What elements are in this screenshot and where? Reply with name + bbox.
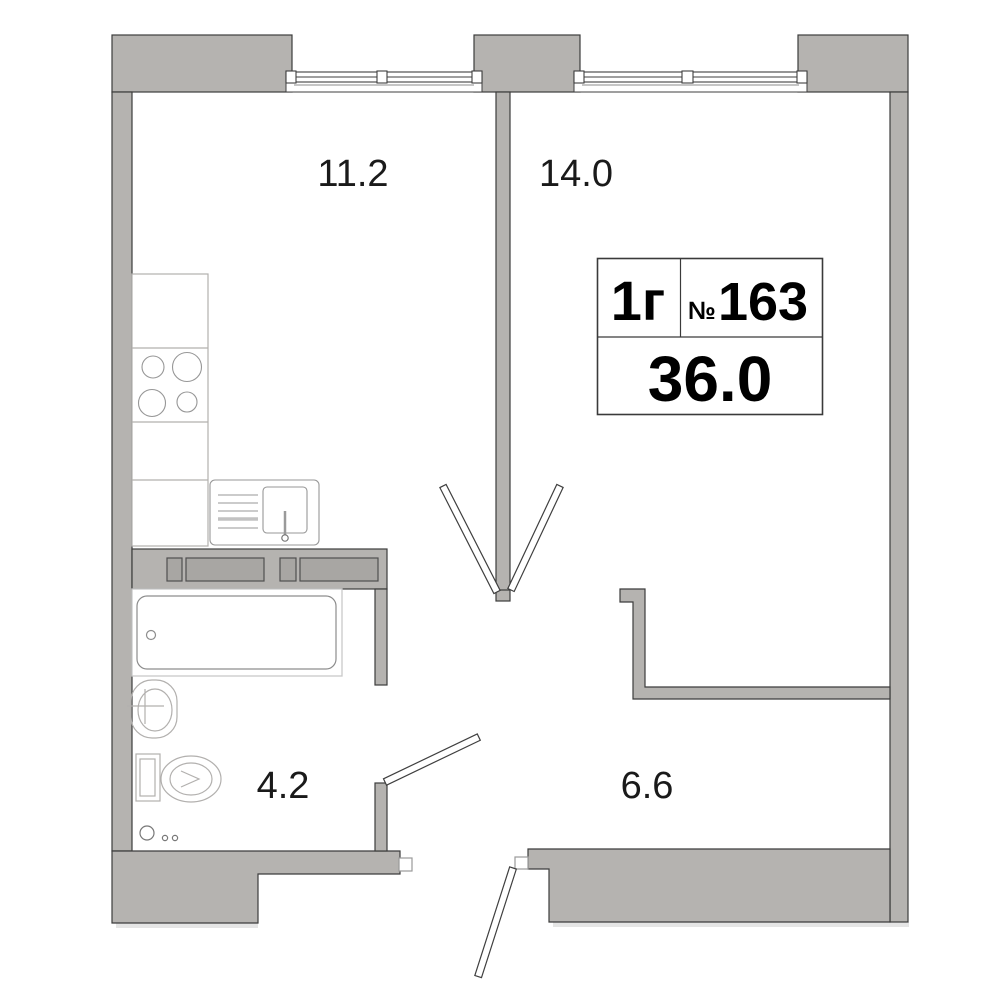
- window-end-cap: [797, 71, 807, 83]
- floor-drain-icon: [140, 826, 178, 841]
- room-labels: 11.2 14.0 4.2 6.6: [257, 153, 674, 807]
- wall-entrance-block: [528, 849, 890, 922]
- hallway-area-label: 6.6: [621, 765, 674, 807]
- kitchen-area-label: 11.2: [317, 153, 388, 195]
- living-room-area-label: 14.0: [539, 153, 613, 195]
- wall-top-right-block: [798, 35, 908, 92]
- toilet-tank-inner: [140, 759, 155, 796]
- faucet-base: [282, 535, 288, 541]
- window-mullion: [377, 71, 387, 83]
- wall-bottom-left-block: [112, 851, 400, 923]
- window-end-cap: [472, 71, 482, 83]
- ventilation-shaft: [280, 558, 296, 581]
- door-frame-notch: [399, 858, 412, 871]
- unit-number: 163: [718, 272, 808, 332]
- wall-hallway-nook: [620, 589, 890, 699]
- window-end-cap: [286, 71, 296, 83]
- kitchen-counter: [132, 274, 208, 546]
- wall-shadow: [553, 922, 909, 927]
- wall-bathroom-east-lower: [375, 783, 387, 851]
- washbasin-bowl: [138, 689, 172, 731]
- apartment-info-card[interactable]: 1г № 163 36.0: [598, 259, 823, 416]
- unit-number-sign: №: [688, 297, 716, 325]
- living-room-window: [574, 71, 807, 92]
- wall-top-left-block: [112, 35, 292, 92]
- toilet-flush-mark: [181, 771, 199, 787]
- toilet-icon: [136, 754, 221, 802]
- floor-plan: 11.2 14.0 4.2 6.6 1г № 163 36.0: [0, 0, 1000, 1000]
- total-area-value: 36.0: [648, 343, 773, 415]
- wall-right: [890, 92, 908, 922]
- window-mullion: [682, 71, 693, 83]
- bathtub-inner: [137, 596, 336, 669]
- bathroom-area-label: 4.2: [257, 765, 310, 807]
- ventilation-shaft: [167, 558, 182, 581]
- wall-left: [112, 92, 132, 851]
- floor-plan-drawing: 11.2 14.0 4.2 6.6 1г № 163 36.0: [0, 0, 1000, 1000]
- bathtub-icon: [132, 589, 342, 676]
- washbasin-icon: [127, 680, 177, 738]
- window-end-cap: [574, 71, 584, 83]
- bathtub-drain: [147, 631, 156, 640]
- drain-circle: [140, 826, 154, 840]
- wall-kitchen-living-divider: [496, 92, 510, 601]
- double-door-left-leaf: [440, 484, 500, 593]
- wall-bathroom-east-upper: [375, 589, 387, 685]
- ventilation-shaft: [186, 558, 264, 581]
- wall-top-center-pillar: [474, 35, 580, 92]
- drain-dot: [172, 835, 177, 840]
- kitchen-fixtures: [132, 274, 319, 546]
- kitchen-sink-icon: [210, 480, 319, 545]
- door-frame-notch: [515, 857, 528, 869]
- bathroom-fixtures: [127, 589, 342, 841]
- kitchen-window: [286, 71, 482, 92]
- entrance-door-leaf: [475, 867, 517, 978]
- double-door-right-leaf: [508, 484, 563, 591]
- doors: [383, 484, 563, 977]
- toilet-bowl-inner: [170, 763, 212, 795]
- unit-type-label: 1г: [611, 269, 665, 332]
- drain-dot: [162, 835, 167, 840]
- ventilation-shaft: [300, 558, 378, 581]
- bathroom-door-leaf: [383, 734, 480, 785]
- wall-shadow: [116, 923, 258, 928]
